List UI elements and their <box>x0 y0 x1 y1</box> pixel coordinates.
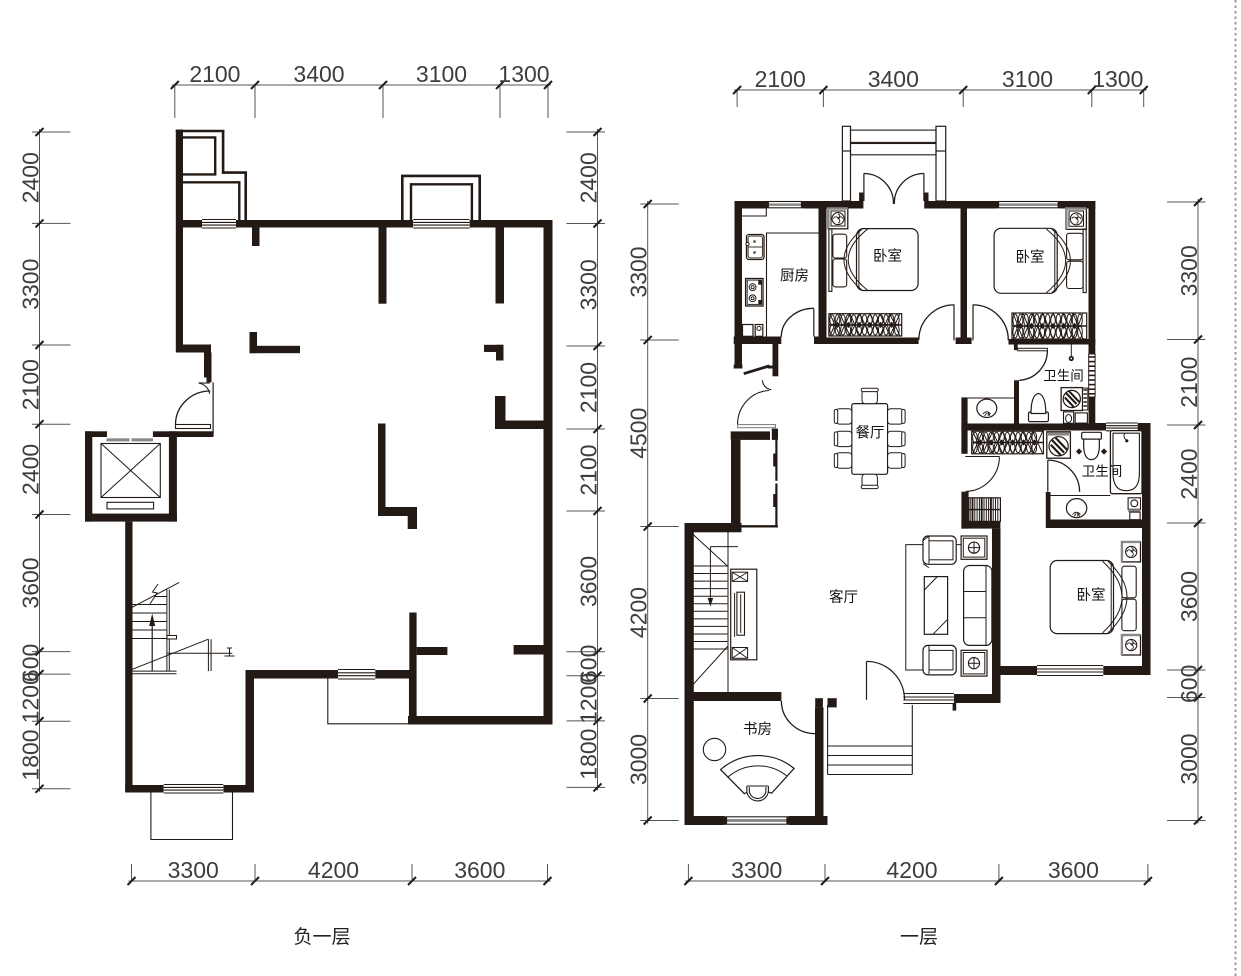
svg-text:3000: 3000 <box>1176 733 1202 784</box>
svg-text:3300: 3300 <box>626 246 652 297</box>
svg-text:4200: 4200 <box>886 857 937 883</box>
svg-text:2100: 2100 <box>575 444 601 495</box>
svg-text:2100: 2100 <box>575 362 601 413</box>
svg-text:3300: 3300 <box>168 857 219 883</box>
svg-text:3600: 3600 <box>17 557 43 608</box>
svg-text:1300: 1300 <box>1092 66 1143 92</box>
svg-text:4200: 4200 <box>626 587 652 638</box>
svg-text:4200: 4200 <box>308 857 359 883</box>
svg-text:卧室: 卧室 <box>1077 587 1106 604</box>
svg-text:一层: 一层 <box>900 927 938 948</box>
svg-text:3400: 3400 <box>293 61 344 87</box>
svg-text:2400: 2400 <box>575 152 601 203</box>
svg-text:厨房: 厨房 <box>780 268 809 285</box>
svg-text:卧室: 卧室 <box>873 248 902 265</box>
svg-text:书房: 书房 <box>743 721 772 738</box>
svg-text:3100: 3100 <box>416 61 467 87</box>
svg-text:2100: 2100 <box>1176 357 1202 408</box>
svg-text:4500: 4500 <box>626 408 652 459</box>
svg-text:3300: 3300 <box>17 259 43 310</box>
svg-text:1200: 1200 <box>17 672 43 723</box>
svg-text:3300: 3300 <box>1176 245 1202 296</box>
svg-text:餐厅: 餐厅 <box>856 425 885 442</box>
svg-text:3600: 3600 <box>1176 571 1202 622</box>
svg-text:2400: 2400 <box>1176 448 1202 499</box>
svg-text:客厅: 客厅 <box>829 589 858 606</box>
svg-text:2100: 2100 <box>189 61 240 87</box>
svg-text:3100: 3100 <box>1002 66 1053 92</box>
svg-text:2100: 2100 <box>755 66 806 92</box>
svg-text:2400: 2400 <box>17 152 43 203</box>
svg-text:1200: 1200 <box>575 673 601 724</box>
svg-text:2400: 2400 <box>17 444 43 495</box>
svg-text:3600: 3600 <box>1048 857 1099 883</box>
svg-text:1300: 1300 <box>498 61 549 87</box>
svg-text:3000: 3000 <box>626 734 652 785</box>
svg-text:3600: 3600 <box>454 857 505 883</box>
svg-text:3400: 3400 <box>868 66 919 92</box>
svg-text:3600: 3600 <box>575 556 601 607</box>
svg-text:600: 600 <box>1176 665 1202 703</box>
svg-text:3300: 3300 <box>731 857 782 883</box>
svg-text:卫生间: 卫生间 <box>1043 369 1084 384</box>
svg-text:2100: 2100 <box>17 359 43 410</box>
svg-text:3300: 3300 <box>575 259 601 310</box>
svg-text:1800: 1800 <box>575 729 601 780</box>
svg-text:卫生间: 卫生间 <box>1082 464 1123 479</box>
svg-text:负一层: 负一层 <box>293 926 350 948</box>
svg-text:1800: 1800 <box>17 729 43 780</box>
svg-text:卧室: 卧室 <box>1016 249 1045 266</box>
